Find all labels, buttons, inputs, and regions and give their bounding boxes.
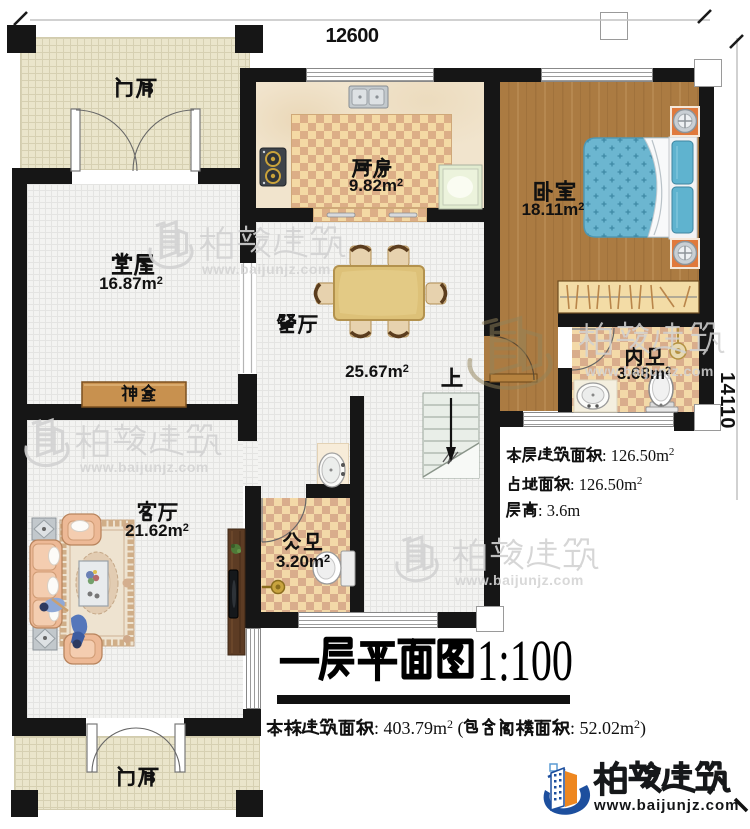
svg-text:: 126.50m2: : 126.50m2: [570, 475, 642, 494]
svg-text:www.baijunjz.com: www.baijunjz.com: [584, 363, 714, 379]
svg-text:3.20m2: 3.20m2: [276, 552, 330, 571]
svg-text:: 126.50m2: : 126.50m2: [602, 446, 674, 465]
svg-text:www.baijunjz.com: www.baijunjz.com: [454, 572, 584, 588]
svg-text:12600: 12600: [325, 25, 378, 47]
svg-text:21.62m2: 21.62m2: [125, 521, 189, 540]
svg-text:16.87m2: 16.87m2: [99, 274, 163, 293]
svg-text:9.82m2: 9.82m2: [349, 176, 403, 195]
svg-text:14110: 14110: [716, 372, 738, 429]
svg-text:18.11m2: 18.11m2: [522, 200, 585, 219]
svg-text:: 52.02m2): : 52.02m2): [570, 717, 646, 739]
svg-text:25.67m2: 25.67m2: [345, 362, 409, 381]
svg-text:: 3.6m: : 3.6m: [538, 501, 580, 520]
svg-text:www.baijunjz.com: www.baijunjz.com: [593, 797, 739, 814]
svg-text:: 403.79m2 (: : 403.79m2 (: [374, 717, 464, 739]
svg-text:www.baijunjz.com: www.baijunjz.com: [79, 459, 209, 475]
svg-text:www.baijunjz.com: www.baijunjz.com: [201, 261, 331, 277]
svg-text:1:100: 1:100: [477, 628, 573, 693]
